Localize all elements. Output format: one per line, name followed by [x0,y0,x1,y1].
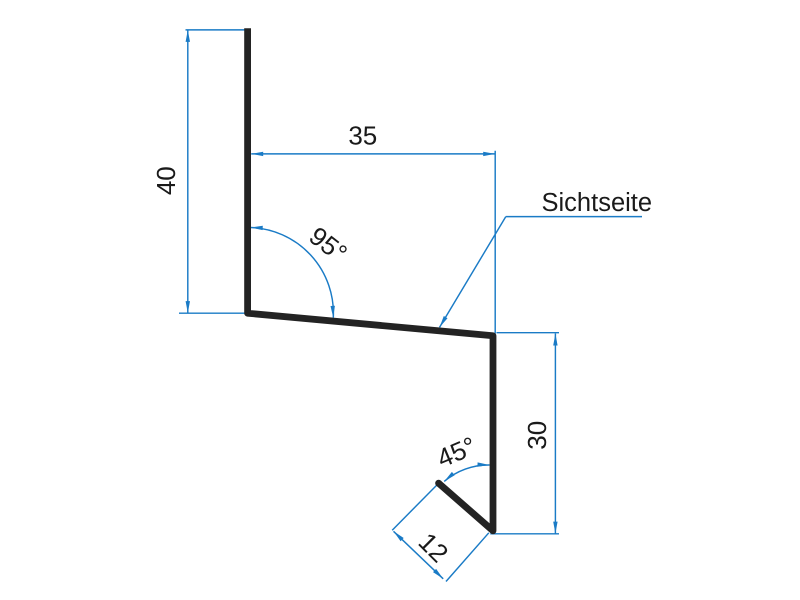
svg-text:35: 35 [348,120,377,150]
svg-text:30: 30 [522,421,552,450]
svg-text:40: 40 [151,166,181,195]
svg-text:Sichtseite: Sichtseite [542,189,653,217]
